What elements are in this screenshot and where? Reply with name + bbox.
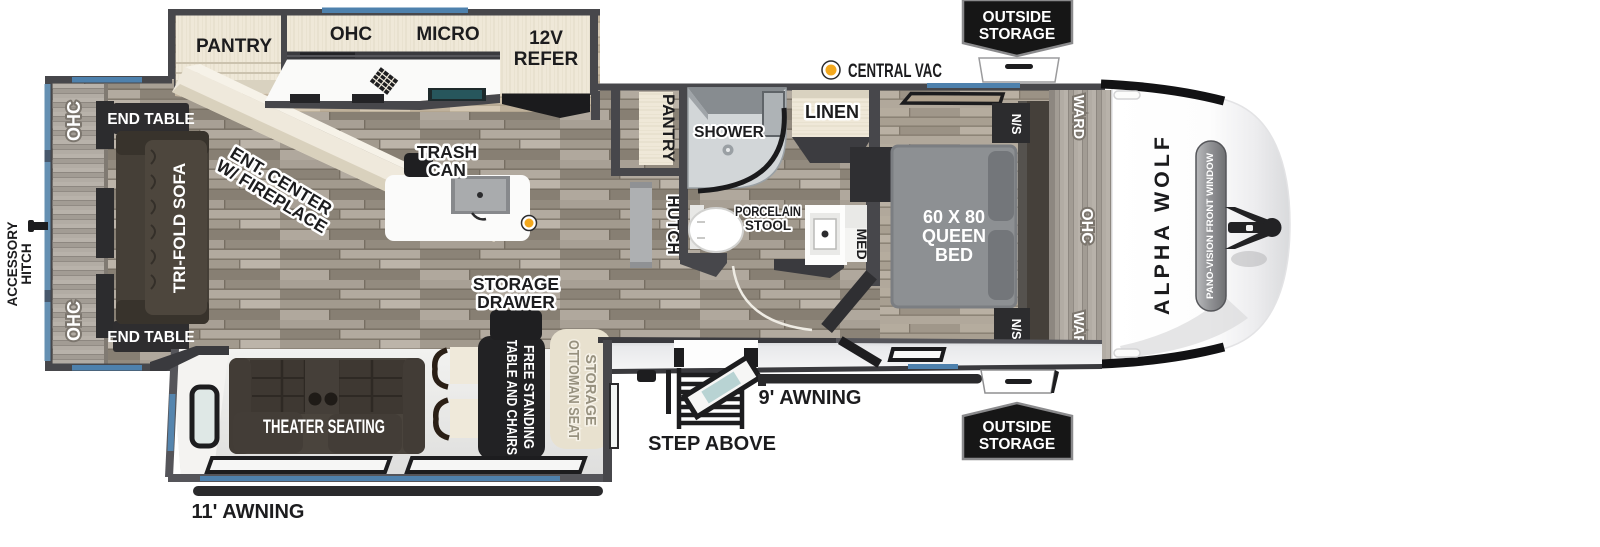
svg-text:N/S: N/S bbox=[1009, 319, 1023, 340]
svg-text:MED: MED bbox=[854, 228, 870, 259]
svg-text:END TABLE: END TABLE bbox=[107, 111, 195, 128]
svg-text:SHOWER: SHOWER bbox=[694, 124, 764, 141]
svg-text:TABLE AND CHAIRS: TABLE AND CHAIRS bbox=[503, 339, 520, 455]
svg-text:MICRO: MICRO bbox=[416, 24, 479, 45]
svg-text:WARD: WARD bbox=[1070, 95, 1086, 139]
svg-text:STORAGE: STORAGE bbox=[582, 354, 598, 426]
svg-text:STORAGEDRAWER: STORAGEDRAWER bbox=[473, 274, 559, 312]
svg-text:TRI-FOLD SOFA: TRI-FOLD SOFA bbox=[170, 163, 189, 293]
svg-text:9' AWNING: 9' AWNING bbox=[759, 387, 862, 409]
svg-text:OTTOMAN SEAT: OTTOMAN SEAT bbox=[565, 340, 581, 440]
svg-text:THEATER SEATING: THEATER SEATING bbox=[263, 417, 385, 438]
svg-text:OHC: OHC bbox=[1078, 208, 1095, 244]
svg-text:PORCELAINSTOOL: PORCELAINSTOOL bbox=[735, 204, 801, 233]
svg-text:END TABLE: END TABLE bbox=[107, 329, 195, 346]
svg-text:LINEN: LINEN bbox=[805, 102, 859, 122]
svg-text:CENTRAL VAC: CENTRAL VAC bbox=[848, 60, 942, 82]
svg-text:N/S: N/S bbox=[1009, 114, 1023, 135]
svg-text:PANO-VISION FRONT WINDOW: PANO-VISION FRONT WINDOW bbox=[1205, 153, 1216, 299]
svg-text:STEP ABOVE: STEP ABOVE bbox=[648, 433, 776, 455]
svg-text:PANTRY: PANTRY bbox=[196, 36, 272, 57]
svg-text:OUTSIDESTORAGE: OUTSIDESTORAGE bbox=[979, 9, 1055, 43]
svg-text:OHC: OHC bbox=[64, 101, 84, 141]
svg-text:OUTSIDESTORAGE: OUTSIDESTORAGE bbox=[979, 419, 1055, 453]
svg-text:ALPHA WOLF: ALPHA WOLF bbox=[1151, 133, 1174, 315]
svg-text:OHC: OHC bbox=[64, 301, 84, 341]
svg-text:PANTRY: PANTRY bbox=[659, 94, 678, 163]
svg-text:OHC: OHC bbox=[330, 24, 373, 45]
svg-text:11' AWNING: 11' AWNING bbox=[192, 501, 305, 523]
svg-text:FREE STANDING: FREE STANDING bbox=[520, 345, 537, 449]
